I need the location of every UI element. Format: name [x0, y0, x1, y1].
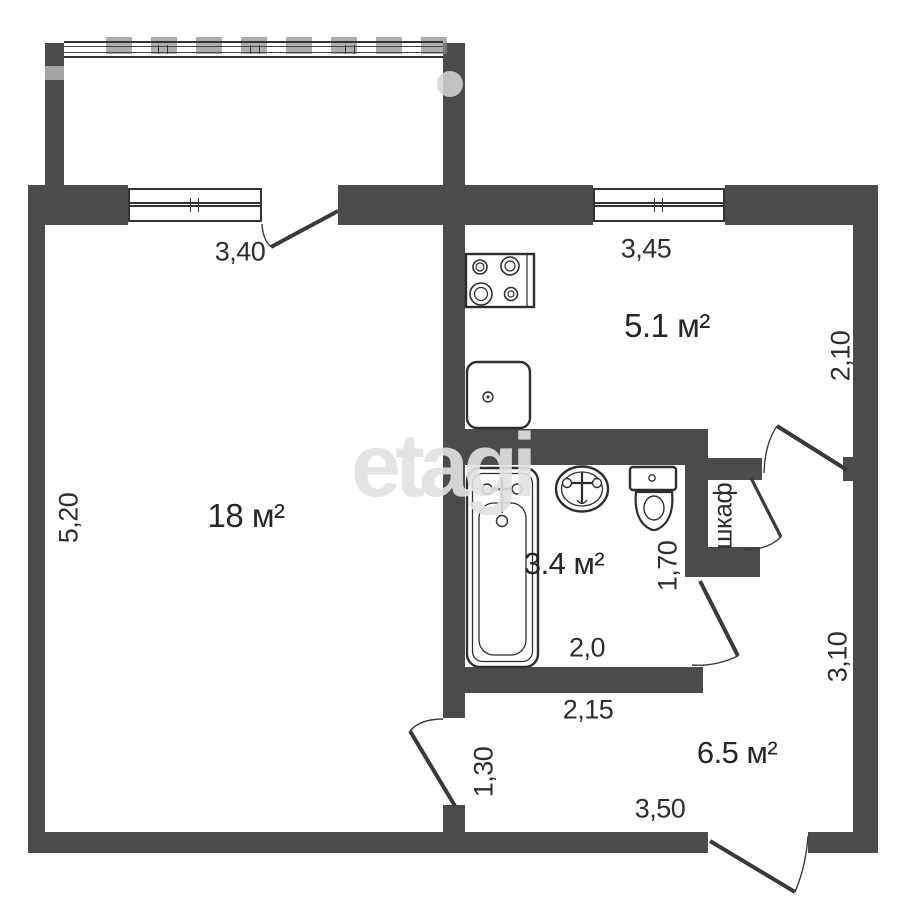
closet-door-leaf [751, 478, 781, 537]
entrance-door-leaf [710, 841, 795, 892]
dim-kitchen-top: 3,45 [621, 234, 672, 265]
balcony-door-leaf [271, 211, 338, 247]
dim-hallway-bottom: 3,50 [635, 794, 686, 825]
dim-bathroom-bottom: 2,0 [569, 633, 605, 664]
dim-hallway-top: 2,15 [563, 695, 614, 726]
stove-icon [466, 254, 534, 307]
living-door-leaf [410, 731, 455, 806]
bathroom-door-arc [692, 656, 738, 665]
living-room-area-label: 18 м² [207, 497, 284, 535]
toilet-icon [630, 467, 676, 530]
dim-living-top: 3,40 [215, 237, 266, 268]
kitchen-area-label: 5.1 м² [624, 307, 710, 345]
washbasin-icon [556, 467, 608, 512]
closet-door-arc [744, 537, 781, 549]
bathroom-door-leaf [700, 581, 738, 656]
watermark-text: etagi [351, 421, 531, 511]
entrance-door-arc [795, 836, 808, 892]
hallway-area-label: 6.5 м² [697, 735, 777, 771]
floor-plan: etagi 18 м² 5.1 м² 3.4 м² 6.5 м² шкаф 3,… [0, 0, 900, 900]
kitchen-hall-door-arc [764, 426, 777, 473]
dim-living-door: 1,30 [469, 747, 500, 798]
living-door-arc [410, 719, 443, 731]
dim-bathroom-right: 1,70 [653, 541, 684, 592]
dim-hallway-right: 3,10 [823, 632, 854, 683]
kitchen-hall-door-leaf [777, 426, 847, 470]
dim-living-left: 5,20 [54, 493, 85, 544]
closet-label: шкаф [708, 483, 739, 550]
dim-kitchen-right: 2,10 [826, 331, 857, 382]
bathroom-area-label: 3.4 м² [524, 546, 604, 582]
